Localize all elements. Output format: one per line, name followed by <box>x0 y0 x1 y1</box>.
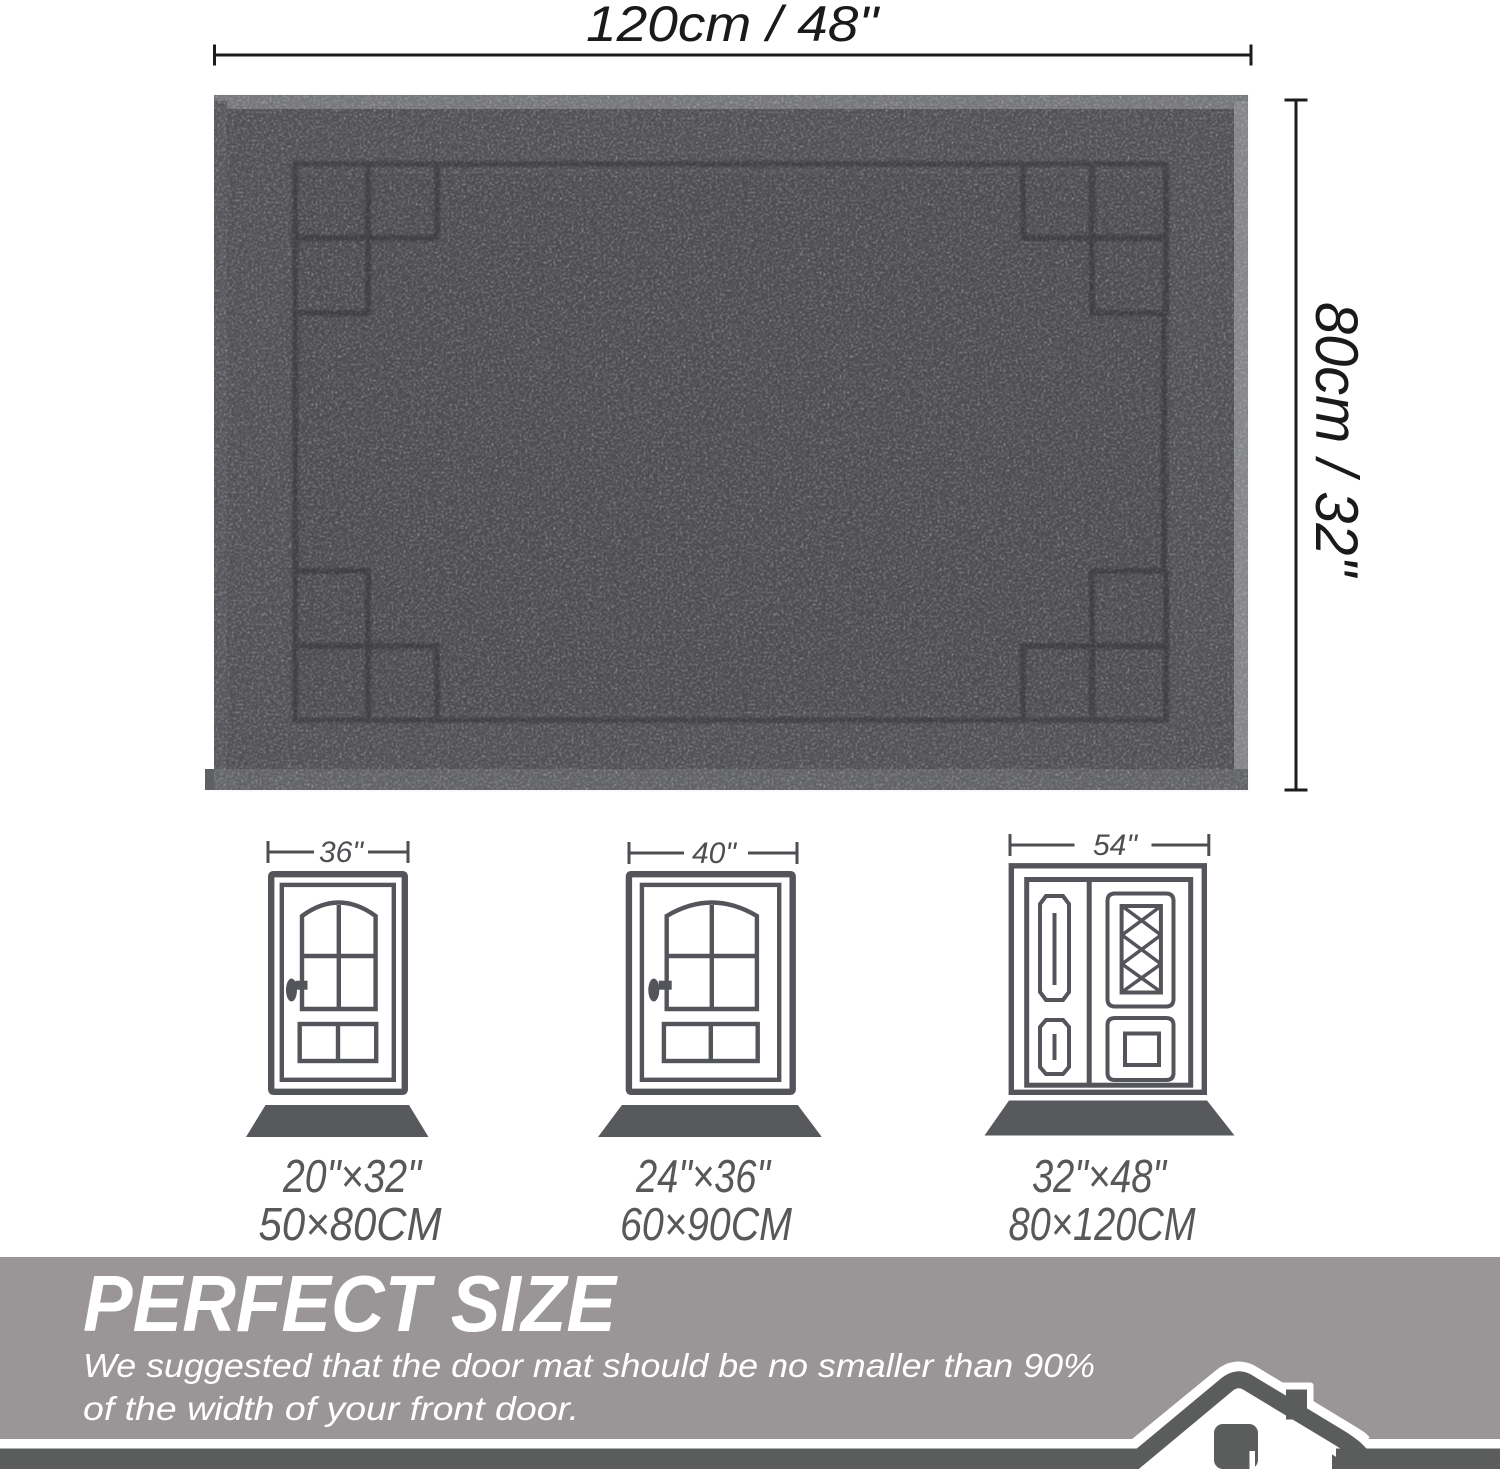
svg-text:50×80CM: 50×80CM <box>259 1198 443 1250</box>
svg-text:We suggested that the door mat: We suggested that the door mat should be… <box>83 1347 1095 1384</box>
svg-text:PERFECT SIZE: PERFECT SIZE <box>83 1259 618 1348</box>
svg-text:20"×32": 20"×32" <box>282 1150 423 1202</box>
svg-text:36": 36" <box>319 836 364 869</box>
svg-text:32"×48": 32"×48" <box>1032 1150 1168 1202</box>
svg-text:24"×36": 24"×36" <box>635 1150 772 1202</box>
svg-text:60×90CM: 60×90CM <box>620 1198 793 1250</box>
svg-text:54": 54" <box>1093 829 1138 862</box>
svg-text:of the width of your front doo: of the width of your front door. <box>83 1390 579 1427</box>
svg-text:40": 40" <box>692 837 737 870</box>
svg-text:80cm / 32": 80cm / 32" <box>1303 302 1370 579</box>
svg-text:80×120CM: 80×120CM <box>1009 1198 1197 1250</box>
svg-text:120cm / 48": 120cm / 48" <box>586 0 880 52</box>
